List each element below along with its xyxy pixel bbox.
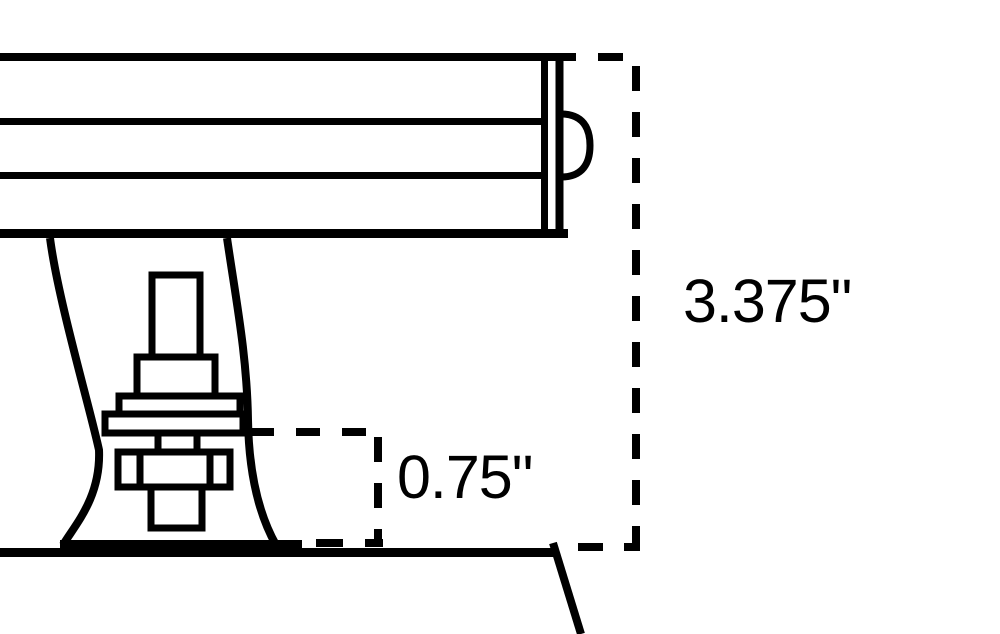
base-foot-plate (60, 540, 302, 549)
flange-lower (105, 414, 243, 433)
base-dimension-label: 0.75" (397, 447, 532, 508)
technical-drawing-canvas: 3.375" 0.75" (0, 0, 1000, 634)
knob-lower-stem (151, 486, 202, 528)
base-right-profile (227, 238, 276, 545)
light-bar (0, 53, 590, 238)
end-cap-button-bump (561, 114, 590, 177)
base-left-profile (50, 238, 99, 545)
ground-surface (0, 543, 581, 634)
height-dimension-label: 3.375" (683, 271, 851, 332)
bolt-block (137, 357, 215, 398)
knob-bolt-assembly (105, 275, 243, 528)
surface-front-edge (553, 543, 581, 634)
bolt-stem (152, 275, 200, 360)
